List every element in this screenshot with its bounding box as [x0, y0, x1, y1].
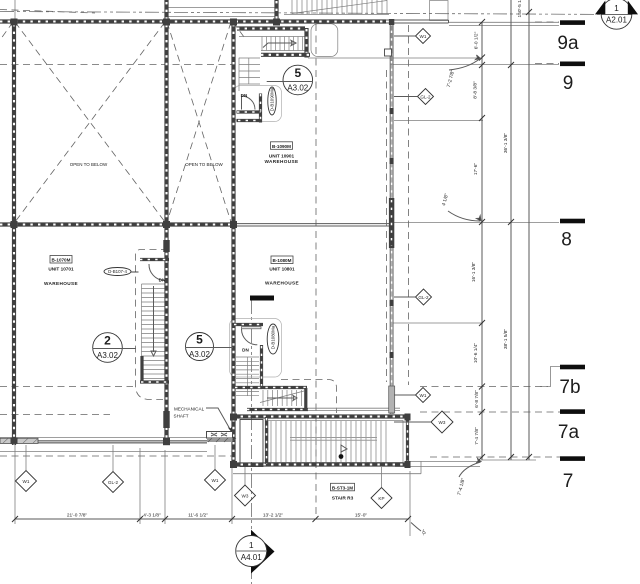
svg-text:W1: W1 [23, 479, 30, 484]
svg-text:A3.02: A3.02 [287, 84, 308, 93]
svg-text:W1: W1 [420, 393, 427, 398]
svg-text:W3: W3 [242, 493, 249, 498]
svg-text:1: 1 [614, 3, 619, 13]
svg-text:MECHANICAL: MECHANICAL [174, 407, 205, 412]
svg-text:38'-1 5/8": 38'-1 5/8" [503, 329, 509, 350]
svg-text:OPEN TO BELOW: OPEN TO BELOW [185, 162, 223, 167]
svg-text:15'-0": 15'-0" [355, 513, 368, 519]
svg-text:6'-8 7/8": 6'-8 7/8" [474, 390, 480, 408]
svg-text:D-B1080Ma: D-B1080Ma [271, 325, 276, 349]
svg-text:5: 5 [196, 333, 203, 347]
svg-text:WAREHOUSE: WAREHOUSE [265, 159, 299, 164]
svg-text:7'-4 7/8": 7'-4 7/8" [474, 427, 480, 445]
svg-text:GL-2: GL-2 [418, 295, 429, 300]
svg-text:SHAFT: SHAFT [174, 414, 189, 419]
svg-text:B-ST3-1M: B-ST3-1M [332, 485, 353, 490]
svg-text:7: 7 [563, 471, 574, 492]
svg-text:WAREHOUSE: WAREHOUSE [265, 281, 299, 286]
svg-text:OPEN TO BELOW: OPEN TO BELOW [70, 162, 108, 167]
svg-text:UNIT 10801: UNIT 10801 [269, 266, 295, 271]
svg-text:7b: 7b [559, 377, 580, 398]
svg-text:8'-8 3/8": 8'-8 3/8" [473, 81, 479, 99]
svg-text:D-B1090Ma: D-B1090Ma [270, 87, 275, 111]
svg-text:UNIT 10701: UNIT 10701 [48, 266, 74, 271]
svg-text:21'-0 7/8": 21'-0 7/8" [67, 513, 88, 519]
svg-text:W1: W1 [212, 478, 219, 483]
svg-text:11'-6 1/2": 11'-6 1/2" [188, 513, 208, 519]
svg-text:A2.01: A2.01 [606, 16, 627, 25]
svg-text:6'-0 1/2": 6'-0 1/2" [474, 31, 480, 49]
svg-text:4'-3 1/8": 4'-3 1/8" [143, 513, 161, 519]
svg-text:36'-1 3/8": 36'-1 3/8" [503, 133, 509, 154]
svg-text:A4.01: A4.01 [241, 553, 262, 562]
svg-text:B-1080M: B-1080M [273, 258, 292, 263]
svg-text:7a: 7a [558, 422, 580, 443]
svg-text:B-1090M: B-1090M [272, 144, 291, 149]
svg-text:150'-5 1/8": 150'-5 1/8" [517, 0, 523, 17]
svg-text:10'-6 1/4": 10'-6 1/4" [473, 343, 479, 364]
svg-text:5: 5 [294, 66, 301, 80]
svg-text:17'-6": 17'-6" [473, 163, 479, 176]
svg-text:16'-1 3/8": 16'-1 3/8" [471, 262, 477, 283]
svg-text:DN: DN [242, 348, 249, 353]
svg-text:8: 8 [561, 230, 572, 251]
svg-text:DN: DN [241, 93, 248, 98]
svg-text:GL-2: GL-2 [108, 480, 119, 485]
svg-text:13'-2 1/2": 13'-2 1/2" [263, 513, 284, 519]
svg-text:UNIT 10901: UNIT 10901 [269, 153, 295, 158]
svg-text:1: 1 [249, 540, 254, 550]
svg-text:9: 9 [563, 73, 574, 94]
svg-text:W1: W1 [420, 34, 427, 39]
svg-text:B-1070M: B-1070M [52, 258, 71, 263]
svg-text:W3: W3 [439, 420, 446, 425]
svg-text:DN: DN [159, 278, 166, 283]
svg-text:WAREHOUSE: WAREHOUSE [44, 281, 78, 286]
svg-text:9a: 9a [557, 33, 579, 54]
svg-text:A3.02: A3.02 [97, 351, 118, 360]
svg-text:STAIR R3: STAIR R3 [332, 496, 354, 502]
svg-text:KP: KP [378, 496, 384, 501]
svg-text:GL-2: GL-2 [420, 94, 431, 99]
svg-text:D-B107-4: D-B107-4 [108, 269, 127, 274]
svg-text:2: 2 [104, 334, 111, 348]
svg-text:A3.02: A3.02 [189, 350, 210, 359]
